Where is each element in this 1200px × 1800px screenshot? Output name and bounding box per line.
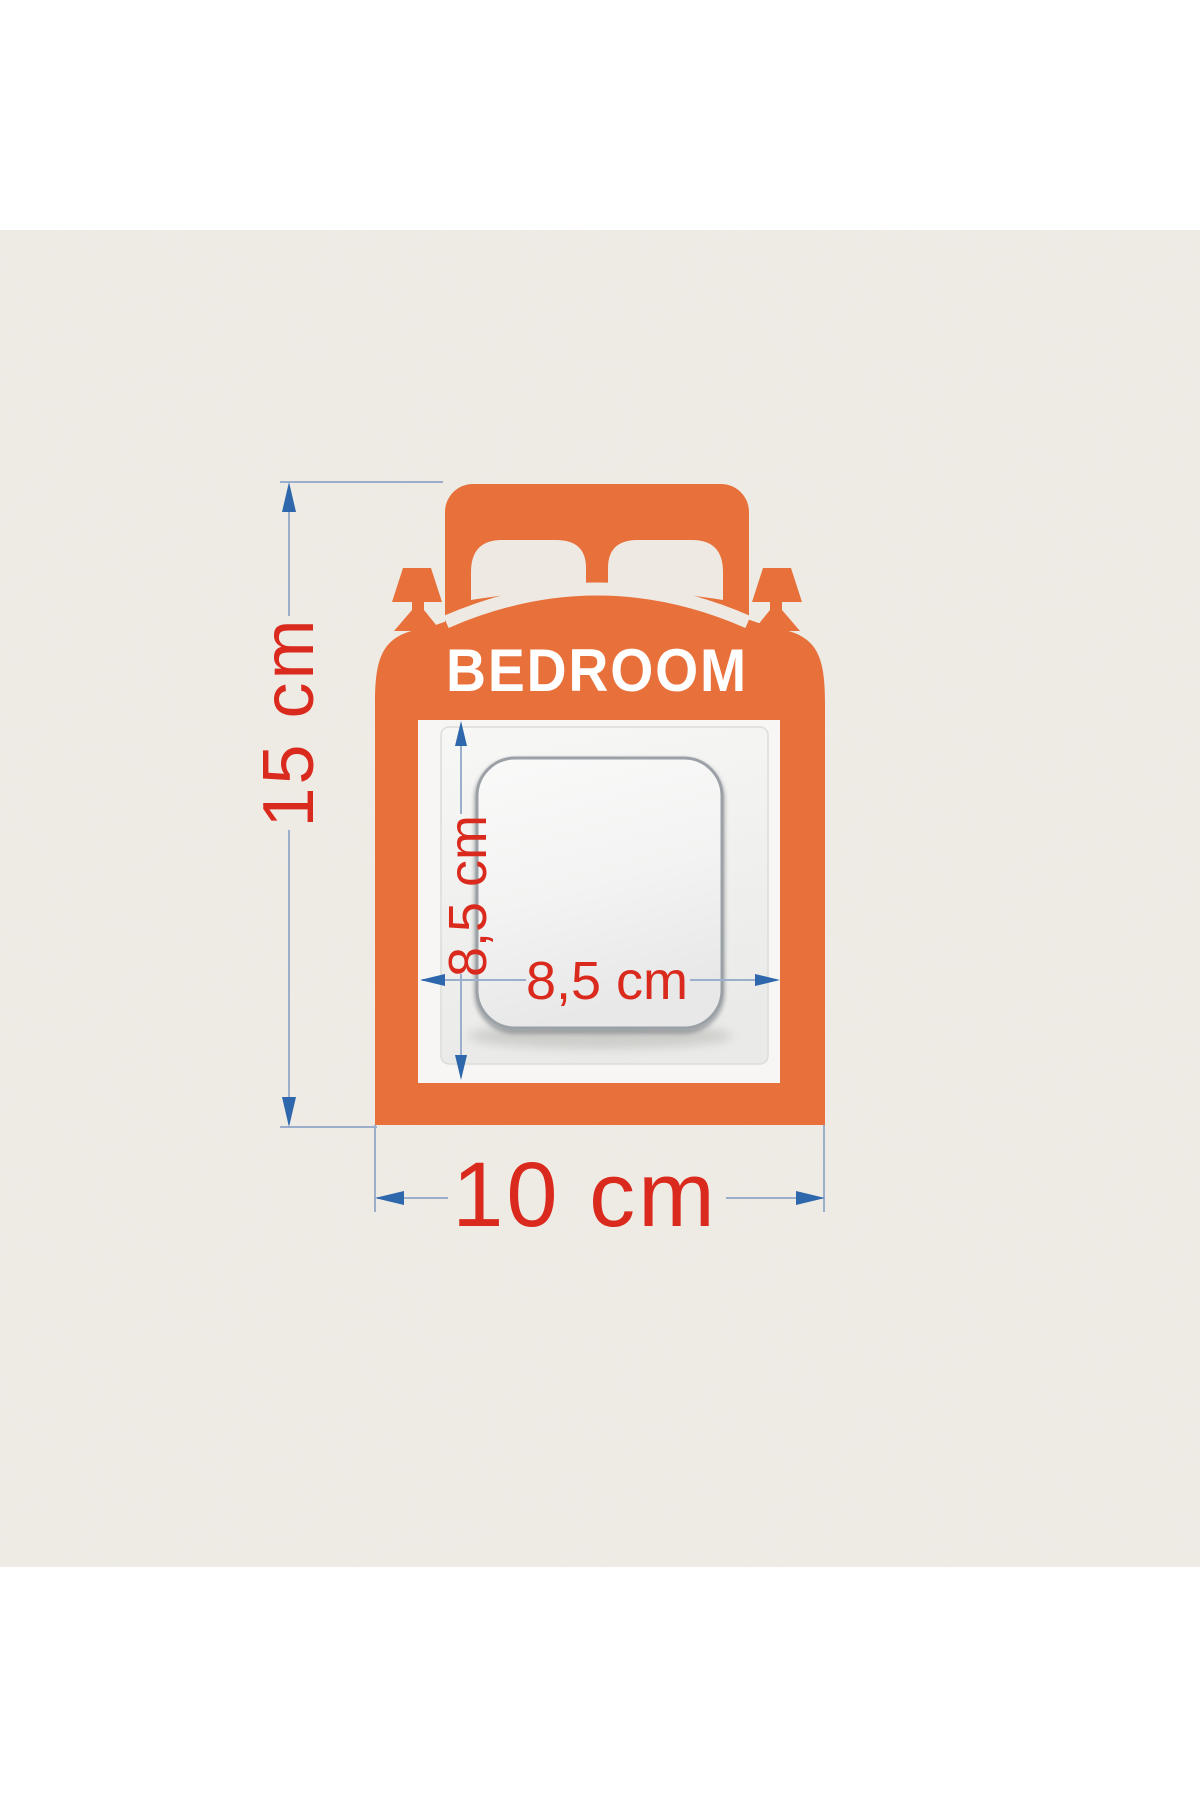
opening-height-label: 8,5 cm	[438, 815, 498, 977]
product-image: BEDROOM 15 cm 10 cm	[0, 0, 1200, 1800]
total-height-label: 15 cm	[249, 616, 329, 827]
diagram-canvas: BEDROOM 15 cm 10 cm	[0, 0, 1200, 1800]
total-width-label: 10 cm	[452, 1144, 718, 1246]
opening-width-label: 8,5 cm	[526, 951, 688, 1011]
sticker-label: BEDROOM	[446, 637, 748, 704]
